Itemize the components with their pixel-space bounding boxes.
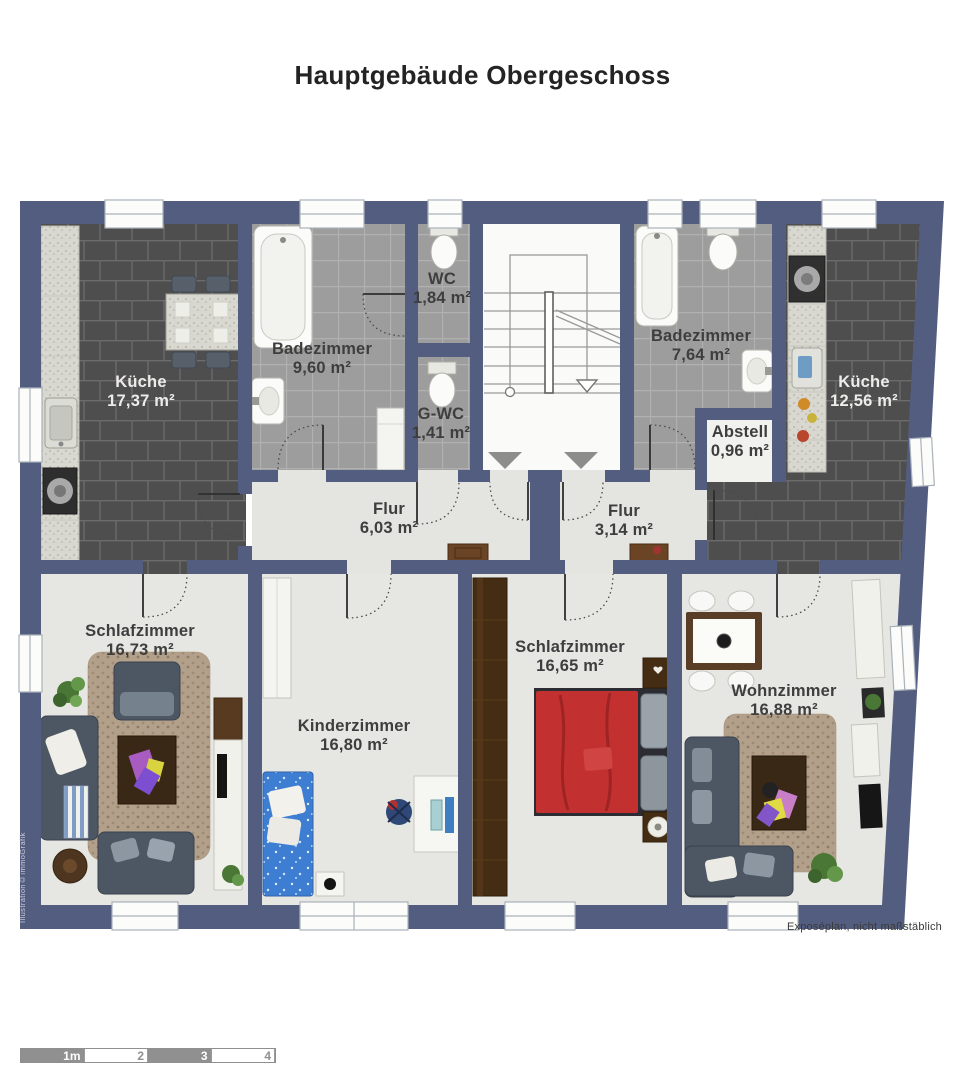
wardrobe-kinderzimmer [263, 578, 291, 698]
room-area: 16,88 m² [731, 701, 836, 720]
stove-left [43, 468, 77, 514]
room-name: Schlafzimmer [515, 638, 625, 656]
coffee-table-wohnzimmer [752, 756, 806, 830]
room-area: 16,65 m² [515, 657, 625, 676]
room-name: Badezimmer [272, 340, 372, 358]
bathtub-left [254, 226, 312, 348]
room-area: 6,03 m² [360, 519, 418, 538]
room-area: 7,64 m² [651, 346, 751, 365]
striped-bench [64, 786, 88, 838]
coffee-table-left [118, 736, 176, 804]
scale-segment: 2 [84, 1049, 149, 1062]
nightstand-kinderzimmer [316, 872, 344, 896]
room-name: Flur [608, 502, 640, 520]
room-area: 1,84 m² [413, 289, 471, 308]
room-label-kinderzimmer: Kinderzimmer 16,80 m² [298, 717, 410, 755]
room-label-abstell: Abstell 0,96 m² [711, 423, 769, 461]
room-area: 1,41 m² [412, 424, 470, 443]
room-name: Abstell [712, 423, 768, 441]
scale-segment: 1m [21, 1049, 84, 1062]
room-label-schlafzimmer-left: Schlafzimmer 16,73 m² [85, 622, 195, 660]
room-area: 17,37 m² [107, 392, 175, 411]
scale-label: 2 [137, 1049, 144, 1063]
toilet-right [707, 224, 739, 270]
scale-segment: 4 [211, 1049, 276, 1062]
scale-label: 1m [63, 1049, 80, 1063]
kitchen-counter-left [41, 226, 79, 566]
footer-note: Exposéplan, nicht maßstäblich [787, 921, 942, 933]
room-area: 3,14 m² [595, 521, 653, 540]
room-label-flur-left: Flur 6,03 m² [360, 500, 418, 538]
room-area: 0,96 m² [711, 442, 769, 461]
room-label-wohnzimmer: Wohnzimmer 16,88 m² [731, 682, 836, 720]
room-name: Badezimmer [651, 327, 751, 345]
kitchen-sink-left [45, 398, 77, 448]
room-label-gwc: G-WC 1,41 m² [412, 405, 470, 443]
scale-label: 4 [264, 1049, 271, 1063]
sideboard-flur-left [448, 544, 488, 562]
room-area: 9,60 m² [272, 359, 372, 378]
room-label-badezimmer-right: Badezimmer 7,64 m² [651, 327, 751, 365]
scale-label: 3 [201, 1049, 208, 1063]
room-name: Kinderzimmer [298, 717, 410, 735]
toilet-wc [430, 224, 458, 269]
round-rug [53, 849, 87, 883]
scale-bar: 1m 2 3 4 [20, 1048, 276, 1063]
wardrobe-schlafzimmer-right [473, 578, 507, 896]
kitchen-counter-right [788, 226, 826, 472]
kid-bed [263, 772, 313, 896]
kitchen-sink-right [792, 348, 822, 388]
room-label-kueche-left: Küche 17,37 m² [107, 373, 175, 411]
illustration-credit: Illustration©immoGrafik [18, 738, 27, 923]
room-label-schlafzimmer-right: Schlafzimmer 16,65 m² [515, 638, 625, 676]
page-title: Hauptgebäude Obergeschoss [295, 60, 671, 91]
room-name: G-WC [418, 405, 465, 423]
bathtub-right [636, 226, 678, 326]
room-name: Küche [838, 373, 889, 391]
room-name: Wohnzimmer [731, 682, 836, 700]
desk-chair [386, 799, 412, 825]
washing-machine [377, 408, 404, 470]
desk [414, 776, 460, 852]
room-label-wc: WC 1,84 m² [413, 270, 471, 308]
floor-plan [0, 0, 965, 1080]
tv-board-left [214, 698, 244, 890]
room-label-flur-right: Flur 3,14 m² [595, 502, 653, 540]
toilet-gwc [428, 362, 456, 407]
room-name: WC [428, 270, 456, 288]
room-label-badezimmer-left: Badezimmer 9,60 m² [272, 340, 372, 378]
room-name: Küche [115, 373, 166, 391]
stove-right [789, 256, 825, 302]
washbasin-left [252, 378, 284, 424]
room-name: Flur [373, 500, 405, 518]
room-area: 16,80 m² [298, 736, 410, 755]
room-area: 12,56 m² [830, 392, 898, 411]
double-bed [534, 688, 672, 816]
room-area: 16,73 m² [85, 641, 195, 660]
room-label-kueche-right: Küche 12,56 m² [830, 373, 898, 411]
room-name: Schlafzimmer [85, 622, 195, 640]
scale-segment: 3 [148, 1049, 211, 1062]
